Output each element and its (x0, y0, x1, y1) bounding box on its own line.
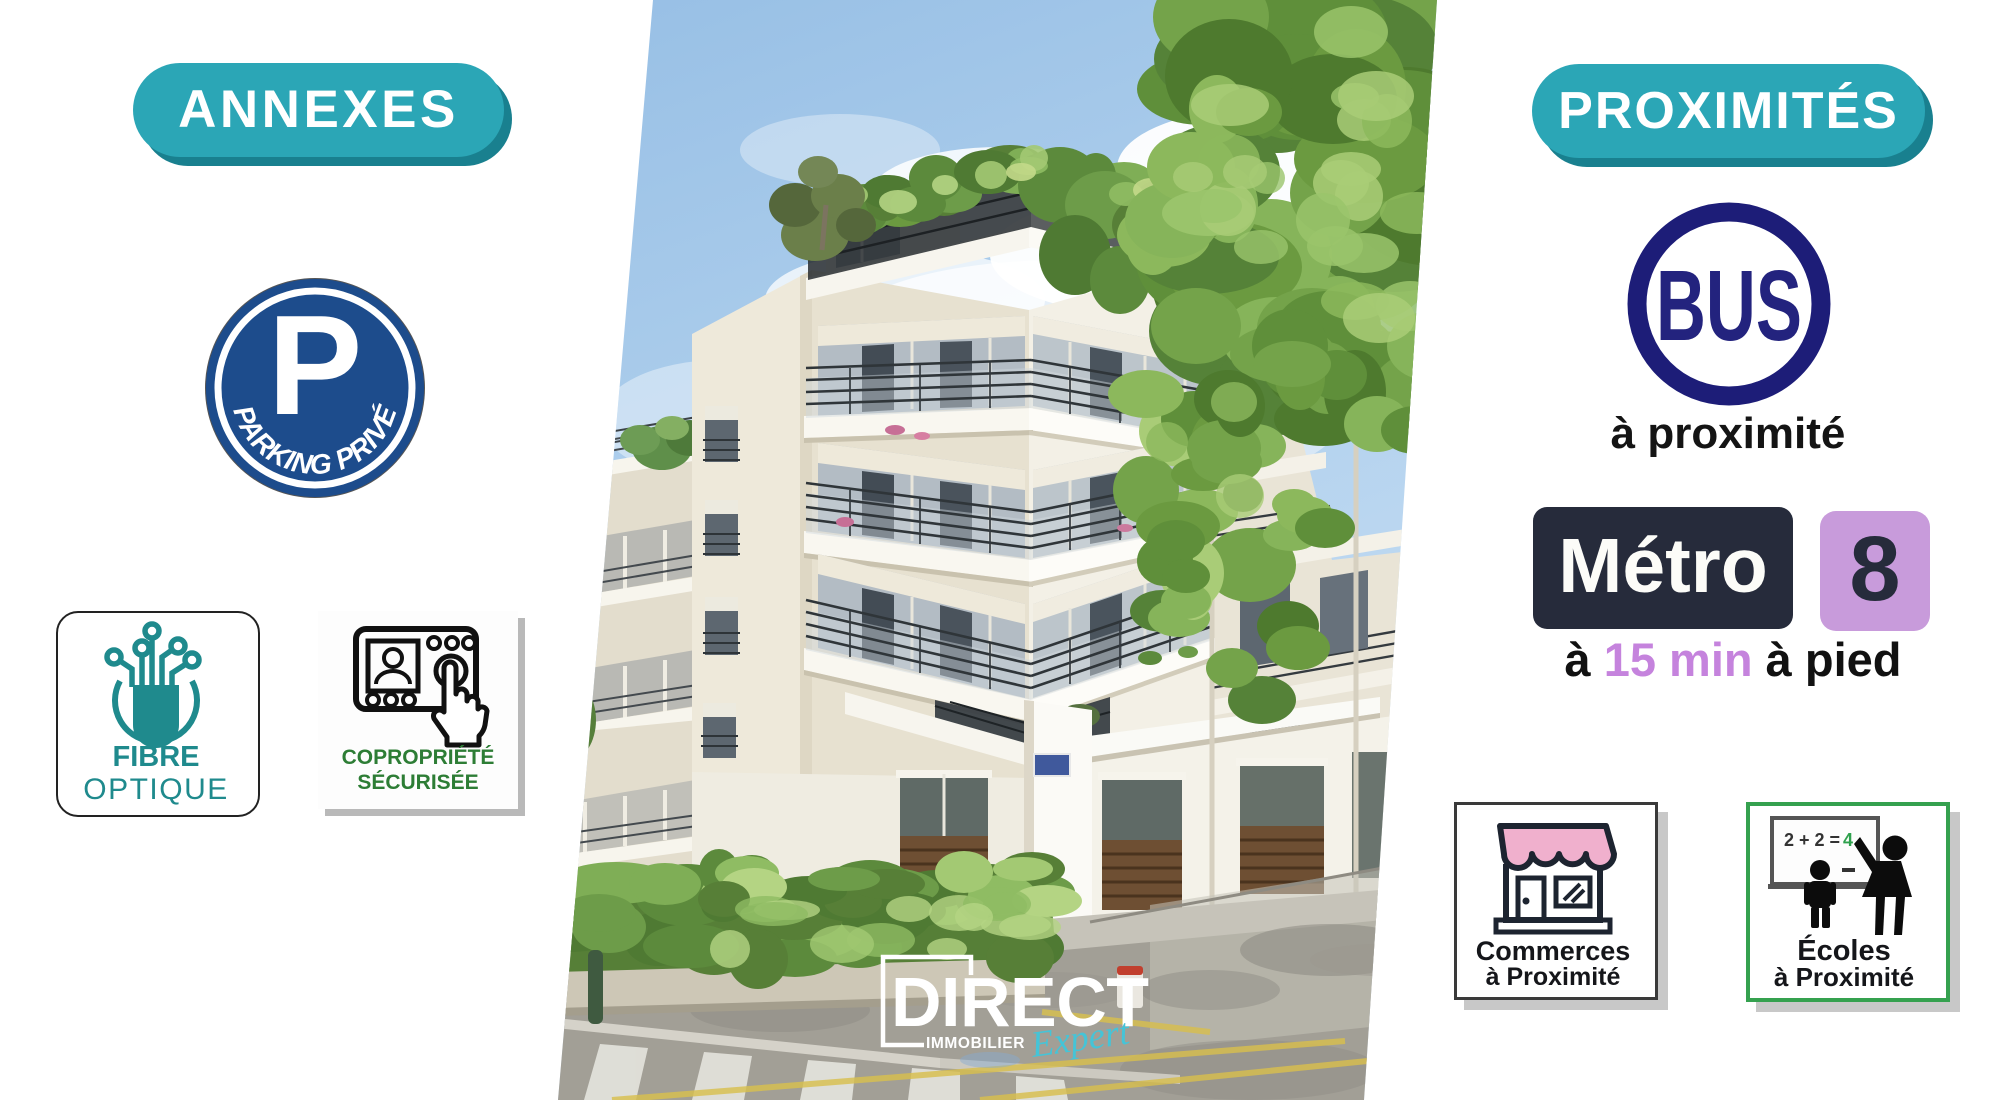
svg-text:OPTIQUE: OPTIQUE (83, 773, 229, 806)
svg-text:P: P (268, 286, 363, 445)
svg-text:BUS: BUS (1656, 250, 1802, 362)
svg-text:2 + 2 =: 2 + 2 = (1784, 830, 1840, 850)
svg-text:IMMOBILIER: IMMOBILIER (926, 1035, 1025, 1052)
svg-text:COPROPRIÉTÉ: COPROPRIÉTÉ (342, 746, 495, 769)
svg-text:FIBRE: FIBRE (113, 741, 200, 773)
svg-text:SÉCURISÉE: SÉCURISÉE (357, 771, 478, 794)
svg-text:à Proximité: à Proximité (1486, 963, 1621, 991)
svg-text:à Proximité: à Proximité (1774, 962, 1914, 992)
svg-text:Commerces: Commerces (1476, 936, 1631, 966)
svg-text:4: 4 (1843, 830, 1853, 850)
